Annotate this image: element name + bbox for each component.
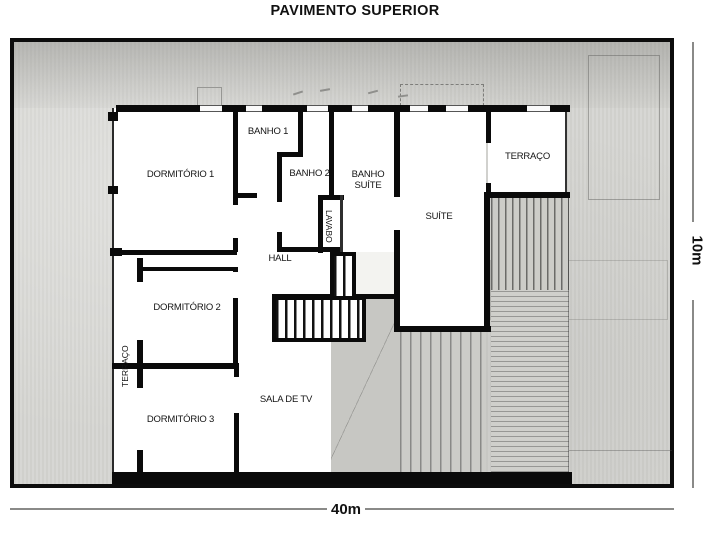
wall [137,450,143,472]
room-label-banho2: BANHO 2 [282,169,337,180]
wall [340,195,343,253]
external-stairs [491,198,569,290]
wall [112,472,572,484]
window [200,105,222,112]
window [410,105,428,112]
wall [112,250,237,255]
height-dimension-line [692,42,694,222]
wall [137,267,237,271]
window [352,105,368,112]
width-dimension-line [365,508,674,510]
wall [394,230,400,332]
wall [233,267,238,272]
wall [394,326,491,332]
wall [277,232,282,252]
window [307,105,328,112]
room-label-dormitorio2: DORMITÓRIO 2 [137,303,237,314]
room-label-suite: SUÍTE [397,212,481,223]
wall [116,105,570,112]
wall [233,108,238,205]
pergola-outline [400,84,484,106]
wall [110,248,122,256]
wall [329,108,334,197]
height-dimension-label: 10m [689,231,706,271]
height-dimension-line [692,300,694,488]
window [246,105,262,112]
window-annotation-box [197,87,222,107]
wall [137,340,143,388]
room-label-dormitorio1: DORMITÓRIO 1 [124,170,237,181]
deck-vertical [400,332,486,472]
window [527,105,550,112]
room-label-banho-suite: BANHO SUÍTE [340,170,396,191]
wall [112,363,237,369]
room-label-terraco-direita: TERRAÇO [488,152,567,163]
wall [137,258,143,282]
width-dimension-line [10,508,327,510]
room-label-sala-de-tv: SALA DE TV [240,395,332,406]
page-title: PAVIMENTO SUPERIOR [180,3,530,19]
wall [484,192,570,198]
room-label-terraco-esquerda: TERRAÇO [120,330,130,402]
room-label-hall: HALL [252,254,308,265]
wall [318,195,323,253]
wall [484,197,490,330]
room-label-banho1: BANHO 1 [237,127,299,138]
deck-horizontal [491,290,569,472]
scan-shading-band [14,42,670,108]
wall [237,193,257,198]
wall [486,110,491,143]
window [446,105,468,112]
wall [108,186,118,194]
hall-tv-wing [237,252,331,472]
small-staircase [330,252,356,298]
garden-outline [588,55,660,200]
room-label-dormitorio3: DORMITÓRIO 3 [124,415,237,426]
floor-plan-page: PAVIMENTO SUPERIOR [0,0,713,535]
width-dimension-label: 40m [320,501,372,518]
room-label-lavabo: LAVABO [324,200,334,252]
wall [233,238,238,252]
main-staircase [272,296,366,342]
wall [108,112,118,121]
wall [234,363,239,377]
wall [486,183,491,197]
